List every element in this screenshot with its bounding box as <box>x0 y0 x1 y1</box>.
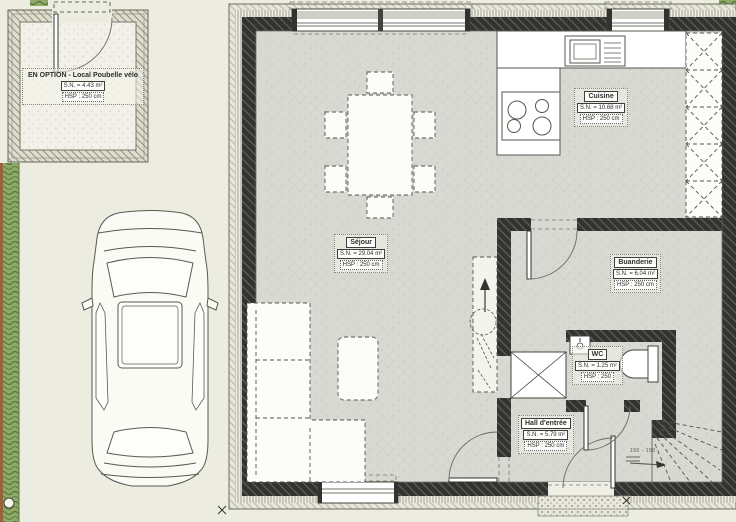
wall-wc-bottom-left <box>566 400 586 412</box>
entrance-door-leaf <box>611 436 615 488</box>
room-name: Hall d'entrée <box>521 418 571 429</box>
option-stair-outline <box>473 257 497 392</box>
kitchen-tall-cabinets-dashed <box>686 33 722 217</box>
toilet-tank <box>648 346 658 382</box>
label-sejour: Séjour S.N. = 29.04 m² HSP : 250 cm <box>334 234 388 273</box>
toilet-bowl <box>620 350 648 378</box>
hall-door-leaf <box>449 478 497 482</box>
label-cuisine: Cuisine S.N. = 10.68 m² HSP : 250 cm <box>574 88 628 127</box>
cabinet-unit <box>686 70 722 107</box>
car-rear-window <box>107 428 193 458</box>
room-area: S.N. = 10.68 m² <box>577 103 625 113</box>
dining-chair <box>325 112 346 138</box>
dining-chair <box>367 72 393 93</box>
room-area: S.N. = 29.04 m² <box>337 249 385 259</box>
label-hall: Hall d'entrée S.N. = 5.79 m² HSP : 250 c… <box>518 415 574 454</box>
label-buanderie: Buanderie S.N. = 6.04 m² HSP : 250 cm <box>610 254 661 293</box>
room-area: S.N. = 1.25 m² <box>575 361 620 371</box>
annex-area: S.N. = 4.43 m² <box>61 81 106 91</box>
room-area: S.N. = 6.04 m² <box>613 269 658 279</box>
room-name: Buanderie <box>614 257 656 268</box>
car-mirror-left <box>82 298 93 310</box>
stair-dimension-note: 150 - 150 <box>630 448 656 454</box>
car-windshield <box>107 258 193 298</box>
room-area: S.N. = 5.79 m² <box>523 430 568 440</box>
car-top-view <box>82 211 218 487</box>
green-patch-top-left <box>30 0 48 6</box>
cabinet-unit <box>686 33 722 70</box>
technical-shaft <box>511 352 566 398</box>
buanderie-door-leaf <box>527 231 531 279</box>
room-hsp: HSP : 250 cm <box>340 260 383 270</box>
wall-sejour-hall <box>497 231 511 356</box>
annex-hsp: HSP : 250 cm <box>62 92 105 102</box>
wall-buanderie-top <box>497 218 722 231</box>
room-hsp: HSP : 250 cm <box>524 441 567 451</box>
car-sunroof <box>118 302 182 368</box>
dining-chair <box>367 197 393 218</box>
cabinet-unit <box>686 107 722 144</box>
wc-door-leaf <box>584 406 588 450</box>
room-hsp: HSP : 250 cm <box>580 114 623 124</box>
dining-chair <box>414 112 435 138</box>
room-hsp: HSP : 250 <box>581 372 614 382</box>
dining-chair <box>325 166 346 192</box>
label-annex: EN OPTION - Local Poubelle vélo S.N. = 4… <box>22 68 144 105</box>
annex-door-leaf <box>54 14 58 72</box>
room-name: Cuisine <box>584 91 617 102</box>
label-wc: WC S.N. = 1.25 m² HSP : 250 <box>572 346 623 385</box>
cabinet-unit <box>686 144 722 181</box>
cabinet-unit <box>686 181 722 217</box>
kitchen-sink-bowl <box>570 40 600 63</box>
site-marker-circle <box>4 498 14 508</box>
wall-wc-bottom-right <box>624 400 640 412</box>
dining-chair <box>414 166 435 192</box>
floor-plan-page: EN OPTION - Local Poubelle vélo S.N. = 4… <box>0 0 736 522</box>
option-stair-dashed <box>470 257 497 392</box>
room-name: WC <box>588 349 608 360</box>
room-name: Séjour <box>346 237 376 248</box>
car-mirror-right <box>207 298 218 310</box>
wall-stub-hall <box>497 398 511 457</box>
wall-stub-stairs <box>652 420 668 438</box>
boundary-brown-line <box>0 163 3 522</box>
annex-door-opening <box>52 8 112 23</box>
entrance-porch-step <box>538 496 628 516</box>
dining-table <box>348 95 412 195</box>
room-hsp: HSP : 250 cm <box>614 280 657 290</box>
coffee-table <box>338 337 378 400</box>
annex-title: EN OPTION - Local Poubelle vélo <box>25 71 141 80</box>
